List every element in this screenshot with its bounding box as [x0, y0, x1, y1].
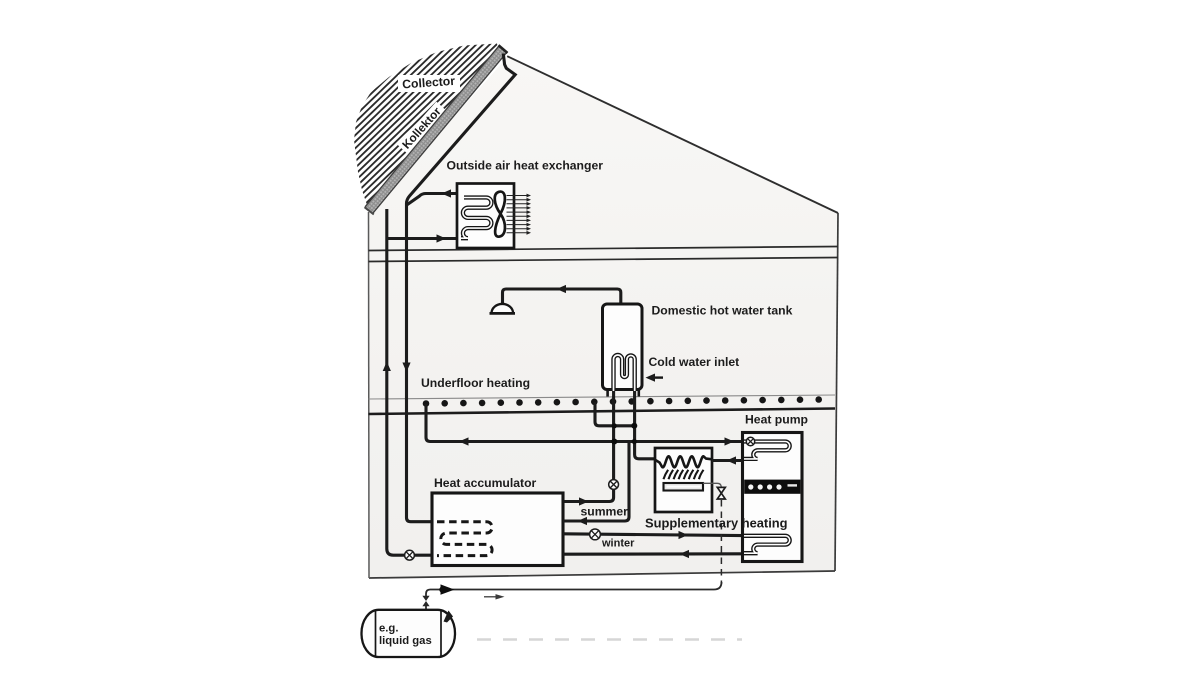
svg-text:e.g.: e.g. [379, 623, 398, 635]
svg-text:Domestic hot water tank: Domestic hot water tank [652, 304, 793, 318]
svg-text:liquid gas: liquid gas [379, 635, 432, 647]
svg-text:Underfloor heating: Underfloor heating [421, 376, 530, 390]
svg-text:Outside air heat exchanger: Outside air heat exchanger [447, 159, 604, 173]
svg-text:winter: winter [601, 538, 635, 550]
svg-text:Supplementary heating: Supplementary heating [645, 516, 788, 531]
svg-text:Heat accumulator: Heat accumulator [434, 476, 537, 490]
svg-text:summer: summer [581, 505, 629, 519]
svg-text:Heat pump: Heat pump [745, 413, 808, 427]
svg-text:Cold water inlet: Cold water inlet [649, 355, 740, 369]
